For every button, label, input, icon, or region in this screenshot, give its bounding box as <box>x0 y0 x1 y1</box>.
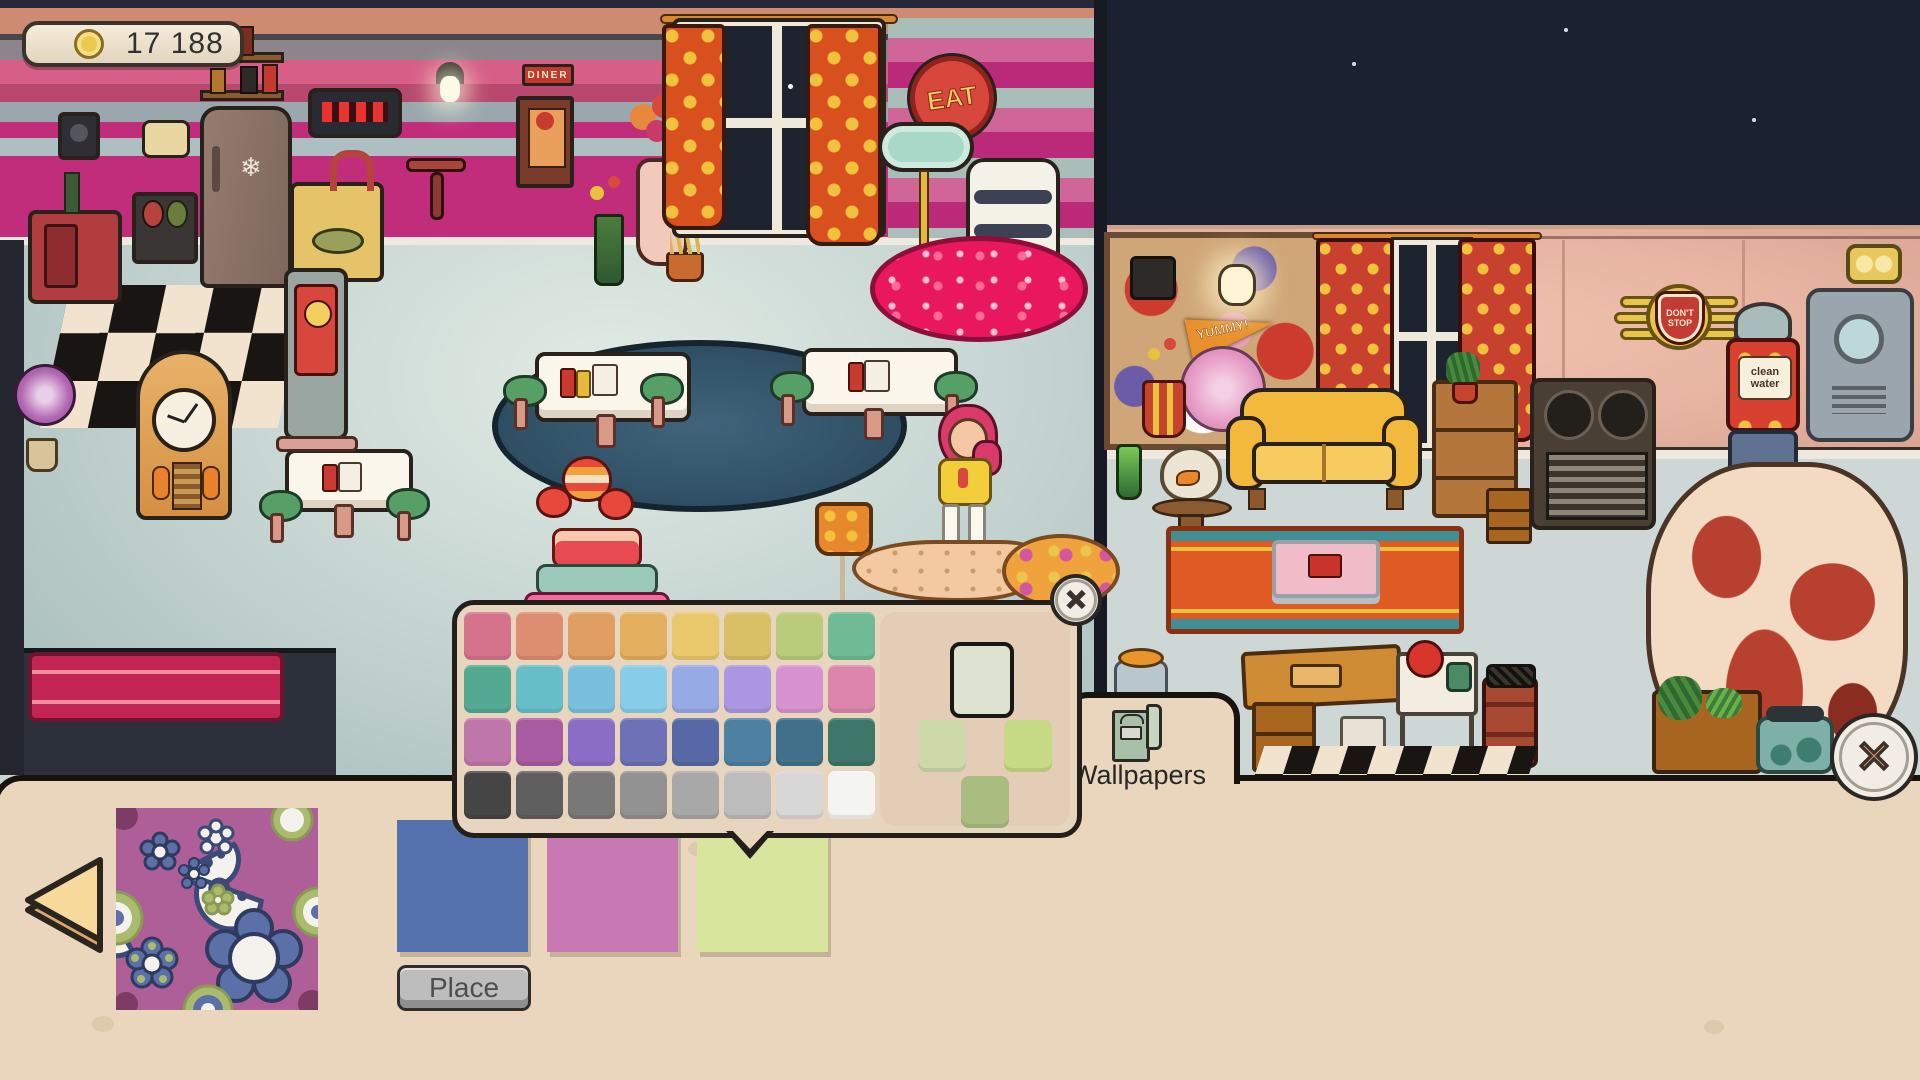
palette-swatch-r2c5[interactable] <box>672 665 719 713</box>
phone-dial <box>304 300 332 328</box>
close-icon: ✕ <box>1065 585 1087 616</box>
current-color-swatch[interactable] <box>950 642 1014 718</box>
jukebox-accent <box>202 466 220 500</box>
game-screen: ❄ DINER EAT <box>0 0 1920 1080</box>
palette-swatch-r2c8[interactable] <box>828 665 875 713</box>
outlet-plate[interactable] <box>142 120 190 158</box>
flower-pot <box>26 438 58 472</box>
palette-swatch-r4c7[interactable] <box>776 771 823 819</box>
aquarium-jar[interactable] <box>1756 716 1834 774</box>
floor-lamp-shade[interactable] <box>815 502 873 556</box>
shelf-jar <box>210 68 226 94</box>
palette-swatch-r3c6[interactable] <box>724 718 771 766</box>
stool-leg <box>781 394 795 426</box>
dont-stop-sign[interactable]: DON'T STOP <box>1658 294 1702 342</box>
flower <box>608 176 620 188</box>
patterned-pot[interactable] <box>1142 380 1186 438</box>
related-color-swatch[interactable] <box>1004 720 1052 772</box>
chair-stripe <box>974 190 1052 204</box>
jukebox-accent <box>152 466 170 500</box>
wallpaper-color-blue[interactable] <box>397 820 528 952</box>
curtain-left[interactable] <box>1316 238 1394 406</box>
palette-swatch-r2c6[interactable] <box>724 665 771 713</box>
clean-water-label: clean water <box>1740 366 1790 390</box>
jukebox-slats <box>172 462 202 510</box>
retro-fridge[interactable] <box>200 106 292 288</box>
sink-basin <box>312 228 364 254</box>
ketchup-bottle <box>322 464 338 492</box>
star <box>1564 28 1568 32</box>
left-wall-edge <box>0 240 24 775</box>
snowflake-icon: ❄ <box>240 152 268 182</box>
star <box>788 84 793 89</box>
close-icon: ✕ <box>1856 732 1893 783</box>
tab-wallpapers-label[interactable]: Wallpapers <box>1072 760 1232 791</box>
star <box>1752 118 1756 122</box>
palette-swatch-r1c8[interactable] <box>828 612 875 660</box>
palette-swatch-r1c7[interactable] <box>776 612 823 660</box>
table-leg <box>334 504 354 538</box>
related-color-swatch[interactable] <box>961 776 1009 828</box>
diner-sign[interactable]: DINER <box>522 64 574 86</box>
coin-counter: 17 188 <box>22 21 244 67</box>
fridge-handle <box>212 146 220 192</box>
palette-swatch-r1c2[interactable] <box>516 612 563 660</box>
cabinet-door <box>44 224 78 288</box>
plant-pot[interactable] <box>1452 382 1478 404</box>
grill[interactable] <box>132 192 198 264</box>
dont-stop-label: DON'T STOP <box>1661 308 1699 328</box>
wallpaper-roll-icon <box>1112 704 1164 762</box>
machine-grille <box>1546 452 1648 520</box>
lamp-pole <box>840 556 845 600</box>
stool-leg <box>270 513 284 543</box>
palette-swatch-r3c8[interactable] <box>828 718 875 766</box>
star <box>1352 62 1356 66</box>
shirt-rocket <box>958 468 968 488</box>
palette-swatch-r3c5[interactable] <box>672 718 719 766</box>
couch-leg <box>1248 488 1266 510</box>
palette-swatch-r3c7[interactable] <box>776 718 823 766</box>
wallpaper-preview[interactable] <box>116 808 318 1010</box>
ketchup-bottle <box>848 362 864 392</box>
palette-swatch-r3c3[interactable] <box>568 718 615 766</box>
color-picker-close-button[interactable]: ✕ <box>1050 574 1102 626</box>
red-book <box>1308 554 1342 578</box>
porthole <box>1834 314 1884 364</box>
plant-pot[interactable] <box>666 252 704 282</box>
curtain-left[interactable] <box>662 24 726 230</box>
table-leg <box>596 414 616 448</box>
palette-swatch-r3c2[interactable] <box>516 718 563 766</box>
faucet <box>330 150 374 191</box>
panel-close-button[interactable]: ✕ <box>1830 713 1918 801</box>
couch-leg <box>1386 488 1404 510</box>
clock-digits <box>322 102 388 122</box>
flower <box>1164 338 1176 350</box>
flower <box>590 186 604 200</box>
hanging-plant <box>1706 688 1742 718</box>
palette-swatch-r4c3[interactable] <box>568 771 615 819</box>
wall-pipe <box>430 172 444 220</box>
barrel-grate <box>1486 664 1536 688</box>
grill-jar <box>166 200 188 228</box>
cooler-dome <box>1734 302 1792 342</box>
heart-balloon[interactable] <box>536 486 572 518</box>
picture-flower <box>536 112 554 130</box>
palette-swatch-r4c1[interactable] <box>464 771 511 819</box>
green-teapot <box>1446 662 1472 692</box>
palette-swatch-r4c4[interactable] <box>620 771 667 819</box>
palette-swatch-r3c4[interactable] <box>620 718 667 766</box>
palette-swatch-r1c5[interactable] <box>672 612 719 660</box>
payphone <box>294 284 338 376</box>
pink-wavy-rug[interactable] <box>28 652 284 722</box>
dust-spot <box>92 1016 114 1032</box>
takeout-bag <box>338 462 362 492</box>
coin-icon <box>74 29 104 59</box>
hanging-plant <box>1658 676 1702 720</box>
wall-lantern[interactable] <box>440 76 460 102</box>
plant-leaves <box>1446 352 1480 386</box>
palette-swatch-r3c1[interactable] <box>464 718 511 766</box>
color-palette-grid <box>464 612 884 827</box>
green-vase[interactable] <box>1116 444 1142 500</box>
wallpaper-color-pink[interactable] <box>547 820 678 952</box>
cutting-board <box>1290 664 1342 688</box>
table-leg <box>864 408 884 440</box>
eat-sign-label: EAT <box>925 79 979 117</box>
palette-swatch-r1c1[interactable] <box>464 612 511 660</box>
palette-swatch-r4c6[interactable] <box>724 771 771 819</box>
flower <box>1148 348 1160 360</box>
palette-swatch-r1c6[interactable] <box>724 612 771 660</box>
ketchup-bottle <box>560 368 576 398</box>
night-sky <box>1107 0 1920 225</box>
pump-base <box>276 436 358 452</box>
red-kettle <box>1406 640 1444 678</box>
couch-cushion-line <box>1322 444 1326 482</box>
step-stool[interactable] <box>1486 488 1532 544</box>
metal-door[interactable] <box>1806 288 1914 442</box>
coin-count: 17 188 <box>126 27 224 61</box>
mustard-bottle <box>576 370 591 398</box>
clean-water-label-plate: clean water <box>1738 356 1792 400</box>
palette-swatch-r4c8[interactable] <box>828 771 875 819</box>
wall-lamp-right[interactable] <box>1218 264 1256 306</box>
stool-leg <box>397 511 411 541</box>
fish <box>1176 470 1200 486</box>
diner-sign-label: DINER <box>527 70 568 81</box>
palette-swatch-r2c1[interactable] <box>464 665 511 713</box>
palette-swatch-r2c7[interactable] <box>776 665 823 713</box>
cake-top-tier[interactable] <box>552 528 642 568</box>
vent-fan-icon <box>70 124 88 142</box>
place-button[interactable]: Place <box>397 965 531 1011</box>
palette-swatch-r4c5[interactable] <box>672 771 719 819</box>
purple-flower[interactable] <box>14 364 76 426</box>
palette-swatch-r2c2[interactable] <box>516 665 563 713</box>
related-color-swatch[interactable] <box>918 720 966 772</box>
jar-lid <box>1118 648 1164 668</box>
window-frame <box>772 22 782 234</box>
shelf-jar <box>262 64 278 94</box>
stool-leg <box>514 398 528 430</box>
shelf-jar <box>240 66 258 94</box>
grill-jar <box>142 200 164 228</box>
takeout-bag <box>592 364 618 396</box>
dust-spot <box>1704 1020 1724 1034</box>
cloud-sign[interactable] <box>878 122 974 172</box>
yellow-vent-lamp[interactable] <box>1846 244 1902 284</box>
poster-speaker <box>1130 256 1176 300</box>
heart-balloon[interactable] <box>598 488 634 520</box>
stool-leg <box>651 396 665 428</box>
palette-swatch-r1c4[interactable] <box>620 612 667 660</box>
tape-reel <box>1544 390 1594 440</box>
palette-swatch-r1c3[interactable] <box>568 612 615 660</box>
wall-pipe[interactable] <box>406 158 466 172</box>
green-vase[interactable] <box>594 214 624 286</box>
curtain-right[interactable] <box>806 24 882 246</box>
door-vents <box>1832 386 1886 414</box>
bottle <box>64 172 80 214</box>
palette-swatch-r2c4[interactable] <box>620 665 667 713</box>
aquarium-lid <box>1766 706 1824 722</box>
palette-swatch-r2c3[interactable] <box>568 665 615 713</box>
tape-reel <box>1598 390 1648 440</box>
pink-round-rug[interactable] <box>870 236 1088 342</box>
takeout-bag <box>864 360 890 392</box>
back-arrow-button[interactable] <box>14 852 106 960</box>
palette-swatch-r4c2[interactable] <box>516 771 563 819</box>
